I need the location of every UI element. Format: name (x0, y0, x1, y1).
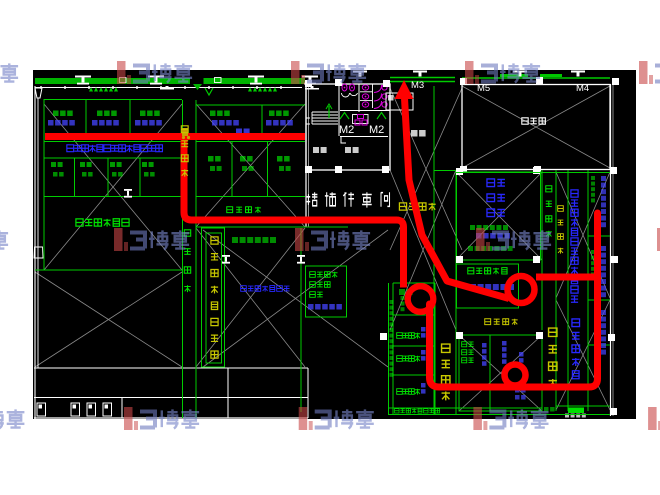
svg-text:M2: M2 (339, 124, 354, 136)
svg-text:M3: M3 (411, 80, 424, 91)
svg-text:M5: M5 (477, 83, 490, 94)
svg-text:M4: M4 (576, 83, 589, 94)
svg-text:M2: M2 (369, 124, 384, 136)
